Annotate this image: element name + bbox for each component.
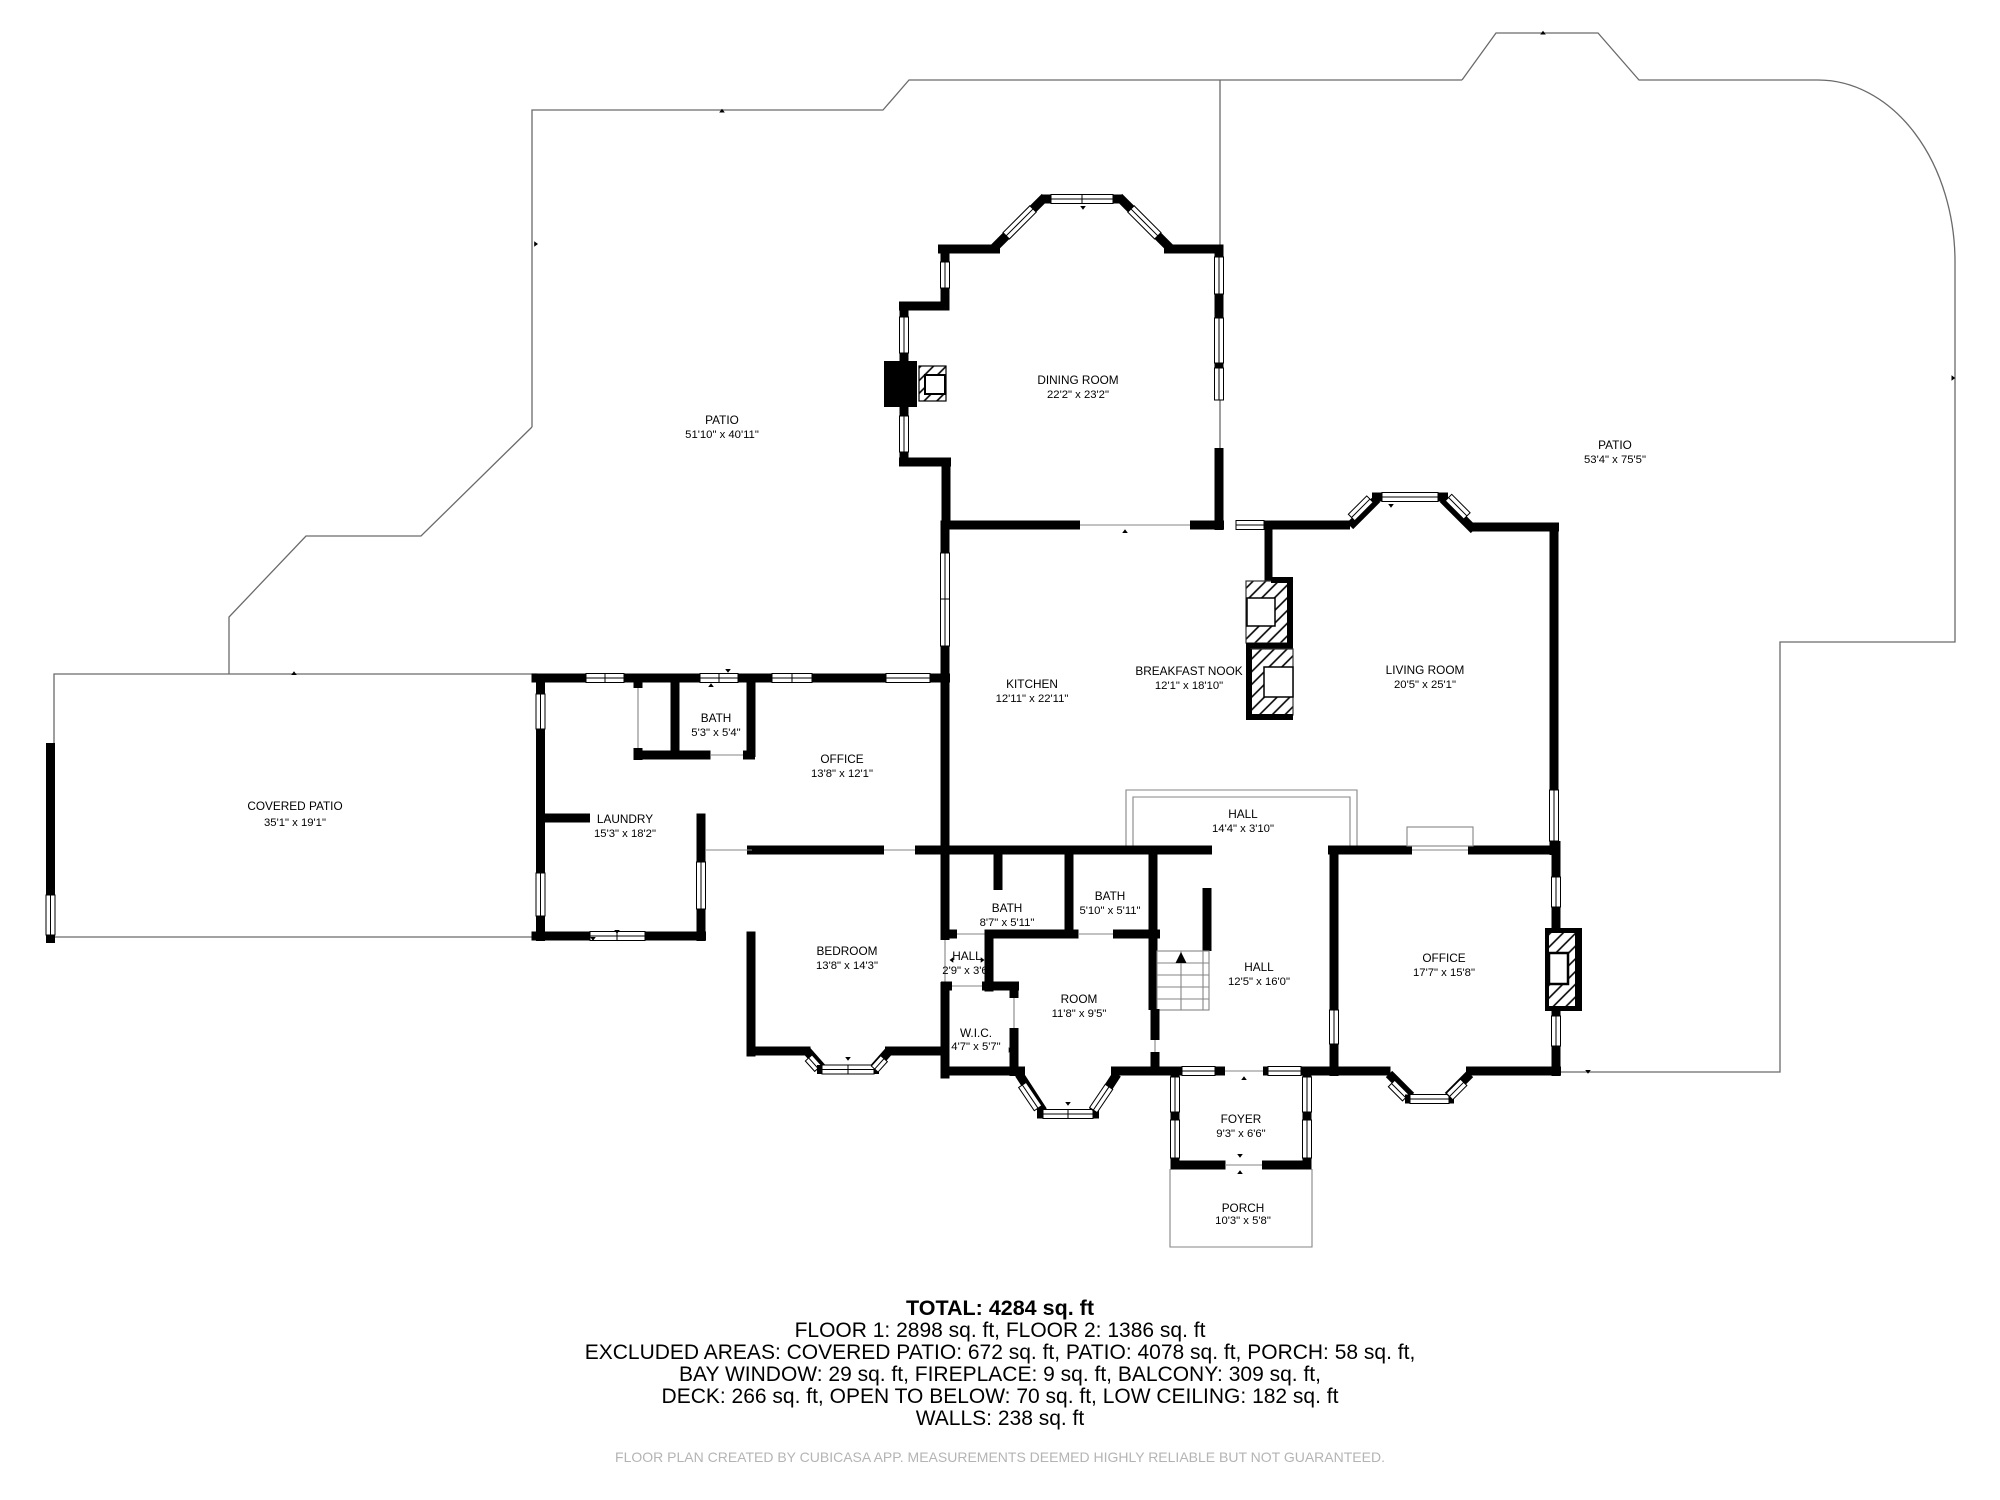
svg-text:BATH: BATH [701, 711, 732, 725]
svg-text:12'5" x 16'0": 12'5" x 16'0" [1228, 976, 1290, 988]
svg-text:EXCLUDED AREAS: COVERED PATIO:: EXCLUDED AREAS: COVERED PATIO: 672 sq. f… [585, 1341, 1416, 1364]
svg-text:2'9" x 3'6": 2'9" x 3'6" [942, 965, 991, 977]
svg-text:BREAKFAST NOOK: BREAKFAST NOOK [1135, 664, 1242, 678]
svg-text:12'11" x 22'11": 12'11" x 22'11" [996, 693, 1069, 705]
svg-text:17'7" x 15'8": 17'7" x 15'8" [1413, 967, 1475, 979]
svg-text:WALLS: 238 sq. ft: WALLS: 238 sq. ft [916, 1407, 1085, 1430]
svg-text:HALL: HALL [952, 949, 982, 963]
svg-text:51'10" x 40'11": 51'10" x 40'11" [685, 429, 759, 441]
svg-text:COVERED PATIO: COVERED PATIO [247, 799, 342, 813]
svg-text:DINING ROOM: DINING ROOM [1037, 373, 1118, 387]
svg-text:OFFICE: OFFICE [1422, 951, 1465, 965]
svg-text:5'3" x 5'4": 5'3" x 5'4" [691, 727, 740, 739]
svg-text:4'7" x 5'7": 4'7" x 5'7" [951, 1041, 1000, 1053]
svg-text:11'8" x 9'5": 11'8" x 9'5" [1052, 1008, 1107, 1020]
svg-text:12'1" x 18'10": 12'1" x 18'10" [1155, 680, 1223, 692]
svg-text:LAUNDRY: LAUNDRY [597, 812, 653, 826]
svg-text:PATIO: PATIO [705, 413, 739, 427]
svg-text:DECK: 266 sq. ft, OPEN TO BELO: DECK: 266 sq. ft, OPEN TO BELOW: 70 sq. … [662, 1385, 1339, 1408]
svg-text:ROOM: ROOM [1061, 992, 1098, 1006]
svg-text:OFFICE: OFFICE [820, 752, 863, 766]
svg-text:14'4" x 3'10": 14'4" x 3'10" [1212, 823, 1274, 835]
svg-text:35'1" x 19'1": 35'1" x 19'1" [264, 817, 326, 829]
svg-text:FOYER: FOYER [1221, 1112, 1262, 1126]
svg-text:KITCHEN: KITCHEN [1006, 677, 1058, 691]
svg-text:8'7" x 5'11": 8'7" x 5'11" [980, 917, 1035, 929]
svg-text:13'8" x 12'1": 13'8" x 12'1" [811, 768, 873, 780]
svg-text:BEDROOM: BEDROOM [817, 944, 878, 958]
svg-text:20'5" x 25'1": 20'5" x 25'1" [1394, 679, 1456, 691]
svg-text:22'2" x 23'2": 22'2" x 23'2" [1047, 389, 1109, 401]
svg-text:FLOOR PLAN CREATED BY CUBICASA: FLOOR PLAN CREATED BY CUBICASA APP. MEAS… [615, 1449, 1385, 1465]
svg-text:BATH: BATH [992, 901, 1023, 915]
svg-text:W.I.C.: W.I.C. [960, 1026, 992, 1040]
svg-text:BAY WINDOW: 29 sq. ft, FIREPLA: BAY WINDOW: 29 sq. ft, FIREPLACE: 9 sq. … [679, 1363, 1321, 1386]
svg-text:FLOOR 1: 2898 sq. ft, FLOOR 2:: FLOOR 1: 2898 sq. ft, FLOOR 2: 1386 sq. … [795, 1319, 1206, 1342]
svg-text:BATH: BATH [1095, 889, 1126, 903]
svg-text:PORCH: PORCH [1222, 1201, 1265, 1215]
svg-text:15'3" x 18'2": 15'3" x 18'2" [594, 828, 656, 840]
svg-text:PATIO: PATIO [1598, 438, 1632, 452]
svg-text:HALL: HALL [1228, 807, 1258, 821]
svg-text:TOTAL: 4284 sq. ft: TOTAL: 4284 sq. ft [906, 1296, 1094, 1320]
svg-text:LIVING ROOM: LIVING ROOM [1386, 663, 1465, 677]
svg-text:10'3" x 5'8": 10'3" x 5'8" [1215, 1215, 1271, 1227]
svg-text:5'10" x 5'11": 5'10" x 5'11" [1079, 905, 1140, 917]
svg-text:9'3" x 6'6": 9'3" x 6'6" [1216, 1128, 1265, 1140]
svg-text:HALL: HALL [1244, 960, 1274, 974]
svg-text:53'4" x 75'5": 53'4" x 75'5" [1584, 454, 1646, 466]
svg-text:13'8" x 14'3": 13'8" x 14'3" [816, 960, 878, 972]
